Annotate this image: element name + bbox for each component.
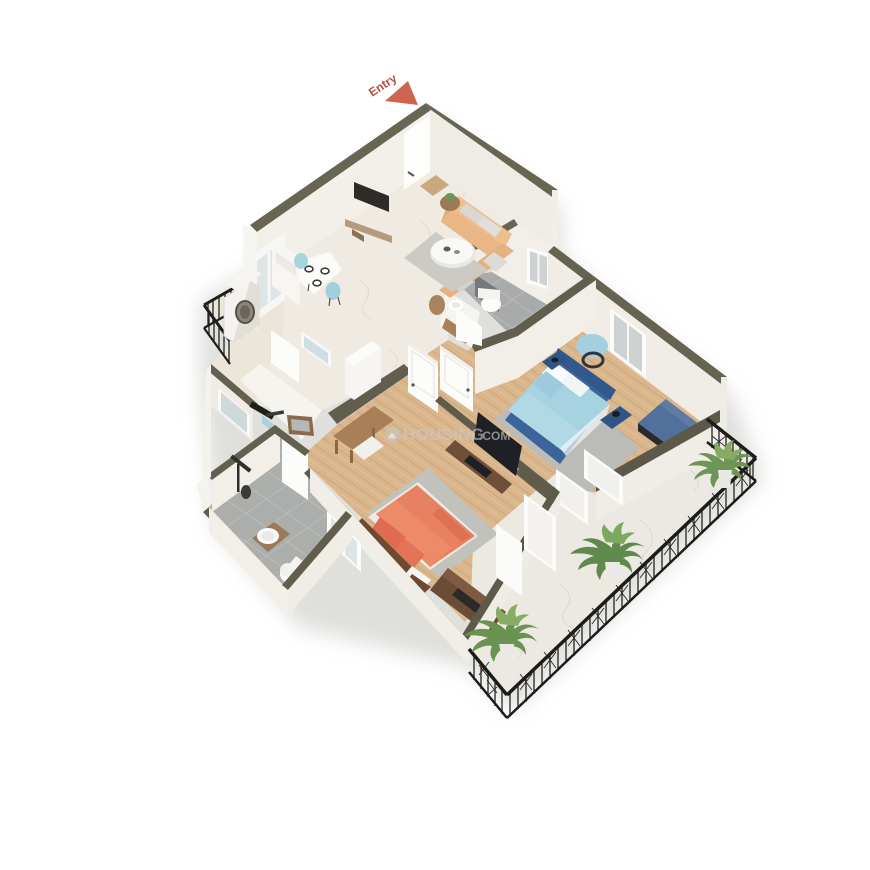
svg-text:HOUSING: HOUSING [403,425,484,444]
svg-text:.COM: .COM [479,429,510,443]
